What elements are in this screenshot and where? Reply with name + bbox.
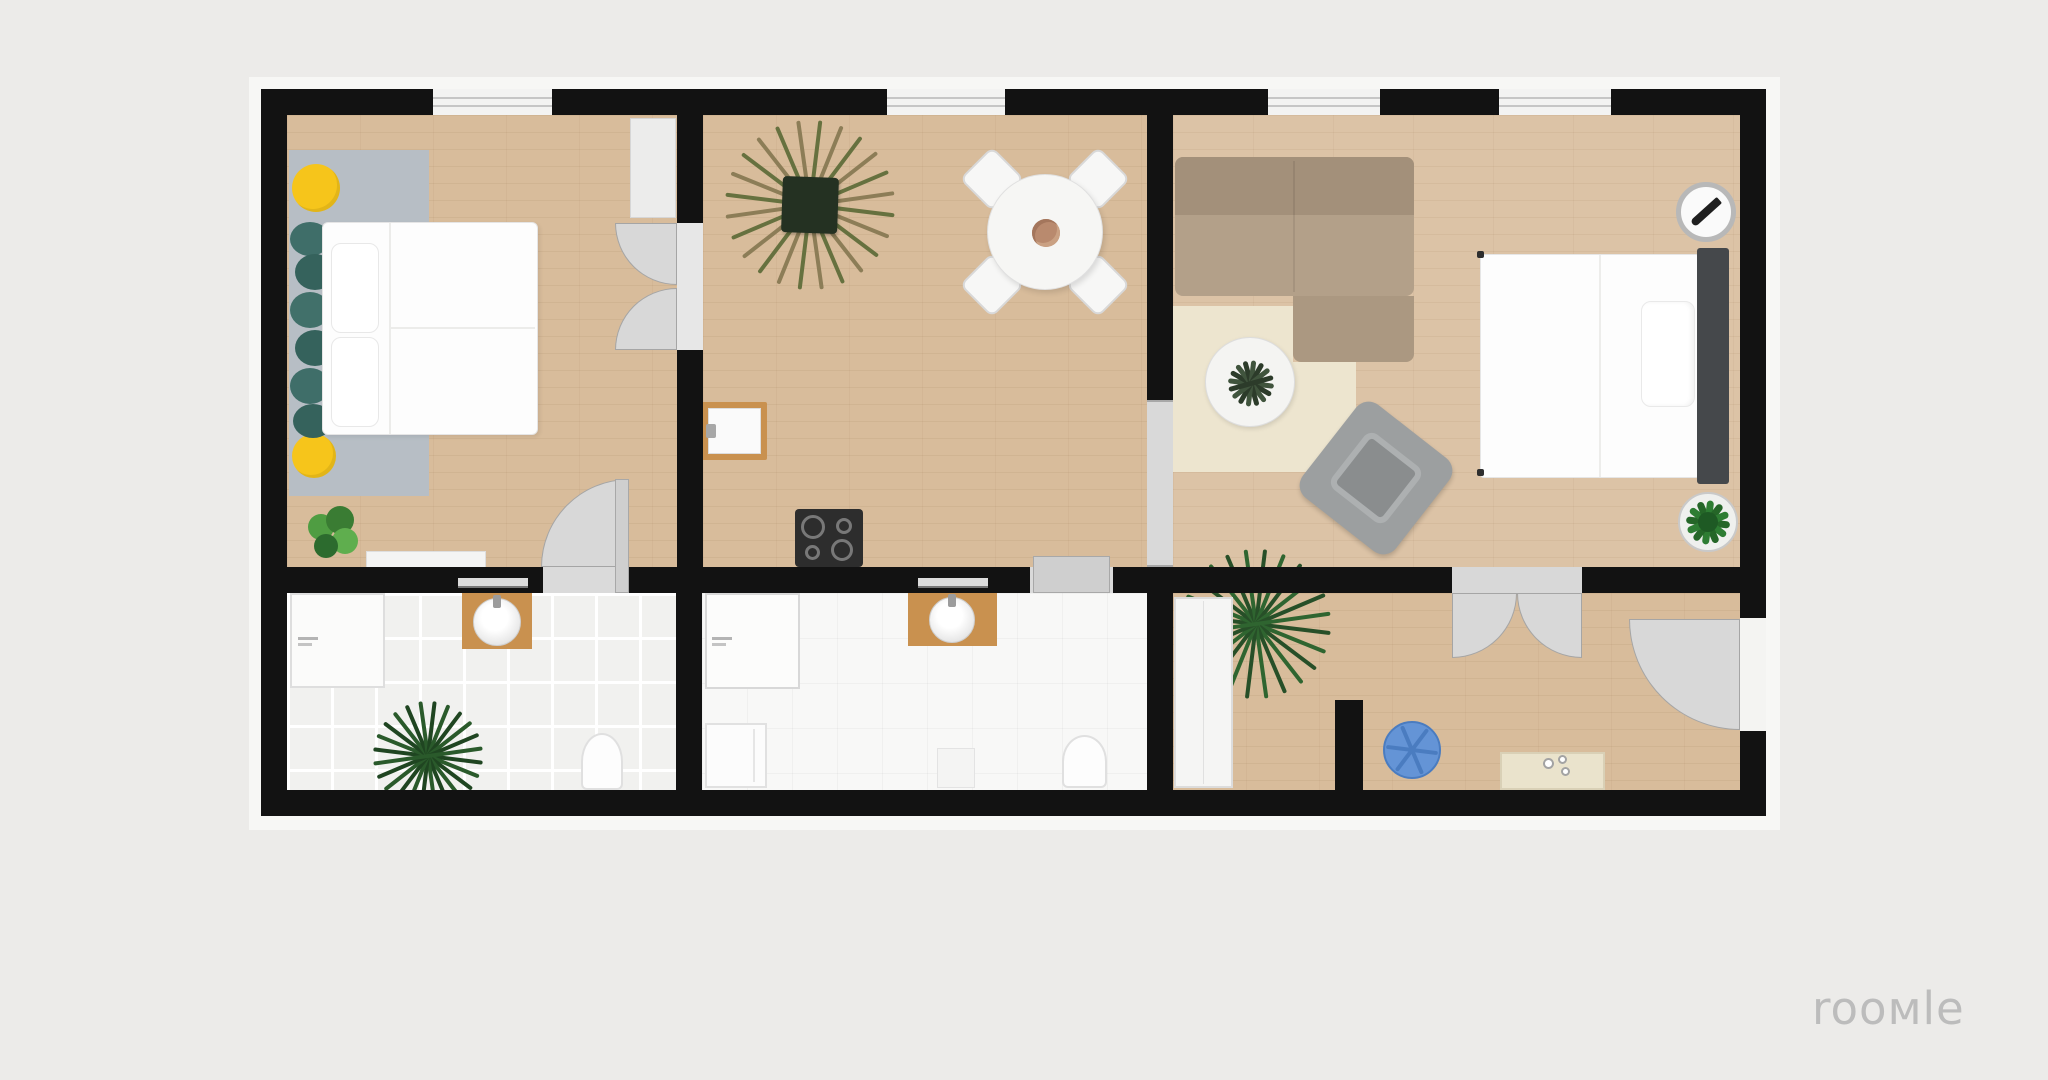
living-double-bed[interactable] [1480, 254, 1700, 478]
round-dining-table[interactable] [987, 174, 1103, 290]
wall-outer-bottom[interactable] [261, 790, 1766, 816]
washer-lid-line [753, 729, 755, 782]
opening-kitchen-living[interactable] [1147, 400, 1173, 567]
kitchen-plant-pot[interactable] [781, 176, 839, 234]
sofa-seam [1293, 161, 1295, 292]
toilet[interactable] [1062, 735, 1107, 788]
counter-sink-knob [1543, 758, 1554, 769]
shower-drain-icon [712, 637, 732, 640]
shower-drain-icon [712, 643, 726, 646]
burner [831, 539, 853, 561]
sink-vanity[interactable] [908, 593, 997, 646]
kitchen-wall-sink[interactable] [700, 402, 767, 460]
corner-sofa[interactable] [1175, 157, 1414, 296]
window[interactable] [1268, 89, 1380, 115]
table-centerpiece [1032, 219, 1060, 247]
entrance-door-opening [1740, 618, 1766, 731]
cooktop[interactable] [795, 509, 863, 567]
burner [805, 545, 820, 560]
faucet-icon [948, 594, 956, 607]
toilet[interactable] [581, 733, 623, 790]
duvet-crease-line [389, 327, 535, 329]
counter-sink-knob [1561, 767, 1570, 776]
wall-bathrooms[interactable] [676, 593, 702, 790]
bed-pillow [331, 243, 379, 333]
counter-sink-knob [1558, 755, 1567, 764]
shower-drain-icon [298, 637, 318, 640]
living-potted-plant[interactable] [1678, 492, 1738, 552]
corner-sofa-chaise[interactable] [1293, 296, 1414, 362]
plant-core [1698, 512, 1718, 532]
bed-pillow [331, 337, 379, 427]
plant-foliage [314, 534, 338, 558]
wall-outer-left[interactable] [261, 89, 287, 816]
bathroom-mirror[interactable] [918, 578, 988, 588]
round-side-table[interactable] [1205, 337, 1295, 427]
sink-vanity[interactable] [462, 593, 532, 649]
sliding-door-leaf[interactable] [1033, 556, 1110, 593]
bed-headboard[interactable] [1697, 248, 1729, 484]
burner [836, 518, 852, 534]
yellow-pouf[interactable] [292, 434, 336, 478]
door-leaf[interactable] [615, 479, 629, 593]
door-opening-bedroom-kitchen [677, 223, 703, 350]
shower-tray[interactable] [290, 593, 385, 688]
bed-frame-foot [1477, 469, 1484, 476]
faucet-icon [706, 424, 716, 438]
tall-wardrobe[interactable] [1174, 597, 1233, 788]
floor-plan-canvas: rooмle [0, 0, 2048, 1080]
window[interactable] [887, 89, 1005, 115]
roomle-logo: rooмle [1812, 982, 1965, 1035]
window[interactable] [433, 89, 552, 115]
hallway-kitchen-counter[interactable] [1500, 752, 1605, 790]
bed-pillow [1641, 301, 1695, 407]
washing-machine[interactable] [705, 723, 767, 788]
bath-mat[interactable] [937, 748, 975, 788]
window[interactable] [1499, 89, 1611, 115]
bedroom-wardrobe-cabinet[interactable] [630, 118, 676, 218]
burner [801, 515, 825, 539]
bathroom-mirror[interactable] [458, 578, 528, 588]
blue-pouf[interactable] [1383, 721, 1441, 779]
shower-tray[interactable] [705, 593, 800, 689]
compass-needle-icon [1690, 197, 1722, 227]
side-table-plant [1228, 360, 1274, 406]
yellow-pouf[interactable] [292, 164, 340, 212]
door-opening-living-hallway [1452, 567, 1582, 593]
compass-dial[interactable] [1676, 182, 1736, 242]
bedroom-potted-plant[interactable] [306, 504, 362, 560]
wardrobe-door-line [1203, 601, 1204, 784]
faucet-icon [493, 595, 501, 608]
bedroom-double-bed[interactable] [322, 222, 538, 435]
duvet-fold-line [1599, 255, 1601, 477]
armchair-seat [1327, 429, 1425, 527]
shower-drain-icon [298, 643, 312, 646]
partition-wall-stub[interactable] [1335, 700, 1363, 790]
bed-frame-foot [1477, 251, 1484, 258]
wall-bathroom-hallway[interactable] [1147, 593, 1173, 790]
